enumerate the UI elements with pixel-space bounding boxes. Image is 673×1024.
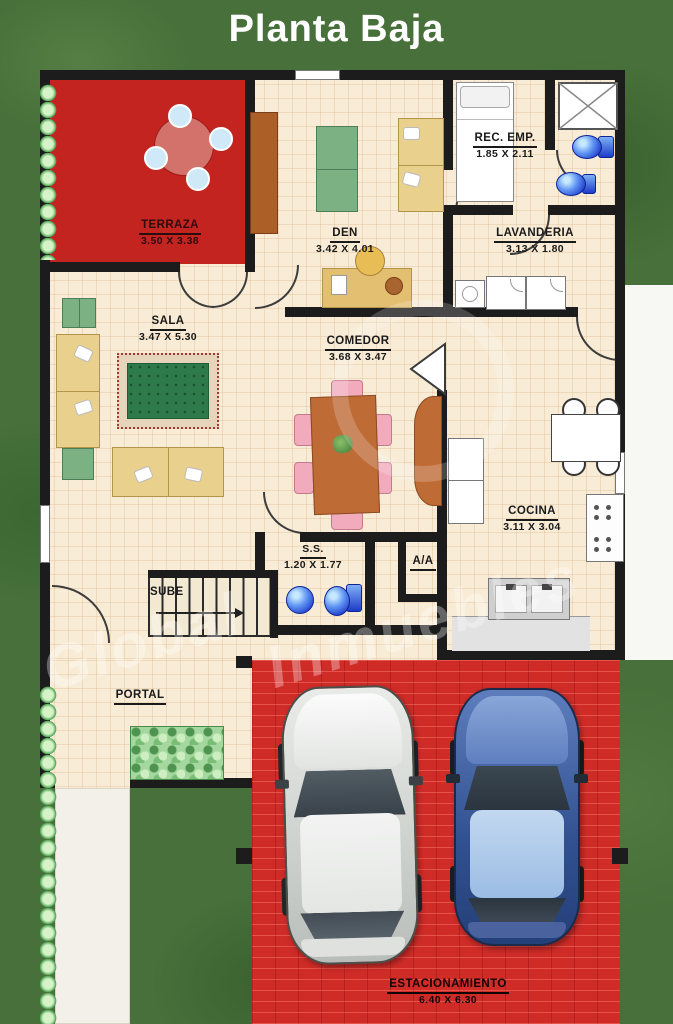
wall-post [612, 848, 628, 864]
room-label-comedor: COMEDOR 3.68 X 3.47 [306, 334, 410, 365]
window [40, 505, 50, 563]
car-windshield [464, 766, 570, 810]
counter [452, 616, 590, 651]
dining-table [310, 395, 380, 515]
room-dims: 1.20 X 1.77 [268, 559, 358, 573]
wall [48, 262, 180, 272]
wall-post [236, 656, 252, 668]
room-name: PORTAL [114, 688, 167, 705]
floor-plan-canvas: Planta Baja [0, 0, 673, 1024]
room-dims: 3.13 X 1.80 [472, 243, 598, 257]
car-rear-window [468, 898, 566, 924]
wall [365, 532, 375, 635]
toilet [556, 172, 586, 196]
room-name: DEN [330, 226, 359, 243]
stove [586, 494, 624, 562]
dining-chair [294, 462, 314, 494]
room-label-estacionamiento: ESTACIONAMIENTO 6.40 X 6.30 [338, 977, 558, 1008]
car-blue [454, 688, 580, 946]
car-trunk [468, 922, 566, 938]
room-dims: 1.85 X 2.11 [453, 148, 557, 162]
wall [270, 570, 278, 638]
room-name: REC. EMP. [473, 131, 538, 148]
room-label-ss: S.S. 1.20 X 1.77 [268, 543, 358, 572]
room-label-portal: PORTAL [90, 688, 190, 705]
patio-chair [209, 127, 233, 151]
room-label-lavanderia: LAVANDERIA 3.13 X 1.80 [472, 226, 598, 257]
shower [558, 82, 618, 130]
car-mirror [446, 774, 460, 783]
wall [548, 205, 625, 215]
hedge-terraza [40, 84, 57, 260]
side-table [62, 448, 94, 480]
car-windshield [293, 769, 406, 818]
room-dims: 6.40 X 6.30 [338, 994, 558, 1008]
wall [285, 307, 450, 317]
room-name: TERRAZA [139, 218, 201, 235]
refrigerator [448, 438, 484, 482]
bathroom-sink [286, 586, 314, 614]
wall [148, 570, 278, 578]
stairs-label: SUBE [150, 585, 220, 600]
room-name: S.S. [300, 543, 325, 559]
room-name: SALA [150, 314, 187, 331]
sofa [56, 334, 100, 448]
wall [443, 215, 453, 315]
laundry-sink [455, 280, 485, 308]
loveseat [112, 447, 224, 497]
wall-post [236, 848, 252, 864]
room-dims: 3.11 X 3.04 [480, 521, 584, 535]
washer [486, 276, 526, 310]
room-dims: 3.50 X 3.38 [110, 235, 230, 249]
double-sink [488, 578, 570, 620]
car-hood [293, 693, 403, 770]
wall [398, 542, 406, 602]
patio-chair [186, 167, 210, 191]
wall [443, 205, 513, 215]
room-label-sala: SALA 3.47 X 5.30 [116, 314, 220, 345]
wall [255, 625, 447, 635]
loveseat [398, 118, 444, 212]
walkway [55, 788, 130, 1024]
room-name: A/A [410, 554, 435, 571]
room-dims: 3.68 X 3.47 [306, 351, 410, 365]
right-white-strip [625, 285, 673, 660]
room-name: COMEDOR [325, 334, 392, 351]
car-mirror [574, 774, 588, 783]
wall [615, 70, 625, 660]
hedge-walkway [40, 686, 57, 1024]
bed-pillow [460, 86, 510, 108]
china-cabinet [414, 396, 442, 506]
wall [443, 650, 625, 660]
car-mirror [409, 776, 423, 785]
room-label-aa: A/A [402, 554, 444, 571]
kitchen-table [551, 414, 621, 462]
room-name: COCINA [506, 504, 558, 521]
counter [448, 480, 484, 524]
car-white [280, 684, 419, 965]
room-name: ESTACIONAMIENTO [387, 977, 508, 994]
planter-box [130, 726, 224, 780]
car-hood [466, 696, 568, 764]
car-mirror [275, 780, 289, 789]
stairs-label-text: SUBE [150, 586, 184, 598]
stairs-direction-arrow [156, 612, 242, 614]
area-rug [117, 353, 219, 429]
wall [398, 594, 447, 602]
window [295, 70, 340, 80]
corner-door-icon [408, 342, 448, 396]
car-roof [300, 813, 403, 916]
patio-chair [168, 104, 192, 128]
car-roof [470, 810, 564, 898]
wall [443, 70, 453, 170]
room-label-cocina: COCINA 3.11 X 3.04 [480, 504, 584, 535]
room-label-rec-emp: REC. EMP. 1.85 X 2.11 [453, 131, 557, 162]
side-table [62, 298, 96, 328]
green-sofa [316, 126, 358, 212]
toilet [572, 135, 602, 159]
patio-chair [144, 146, 168, 170]
toilet [324, 586, 350, 616]
dryer [526, 276, 566, 310]
page-title: Planta Baja [0, 8, 673, 51]
room-dims: 3.42 X 4.01 [295, 243, 395, 257]
room-label-terraza: TERRAZA 3.50 X 3.38 [110, 218, 230, 249]
table-centerpiece [332, 435, 353, 454]
room-name: LAVANDERIA [494, 226, 576, 243]
cabinet [250, 112, 278, 234]
room-dims: 3.47 X 5.30 [116, 331, 220, 345]
room-label-den: DEN 3.42 X 4.01 [295, 226, 395, 257]
car-trunk [301, 937, 405, 958]
